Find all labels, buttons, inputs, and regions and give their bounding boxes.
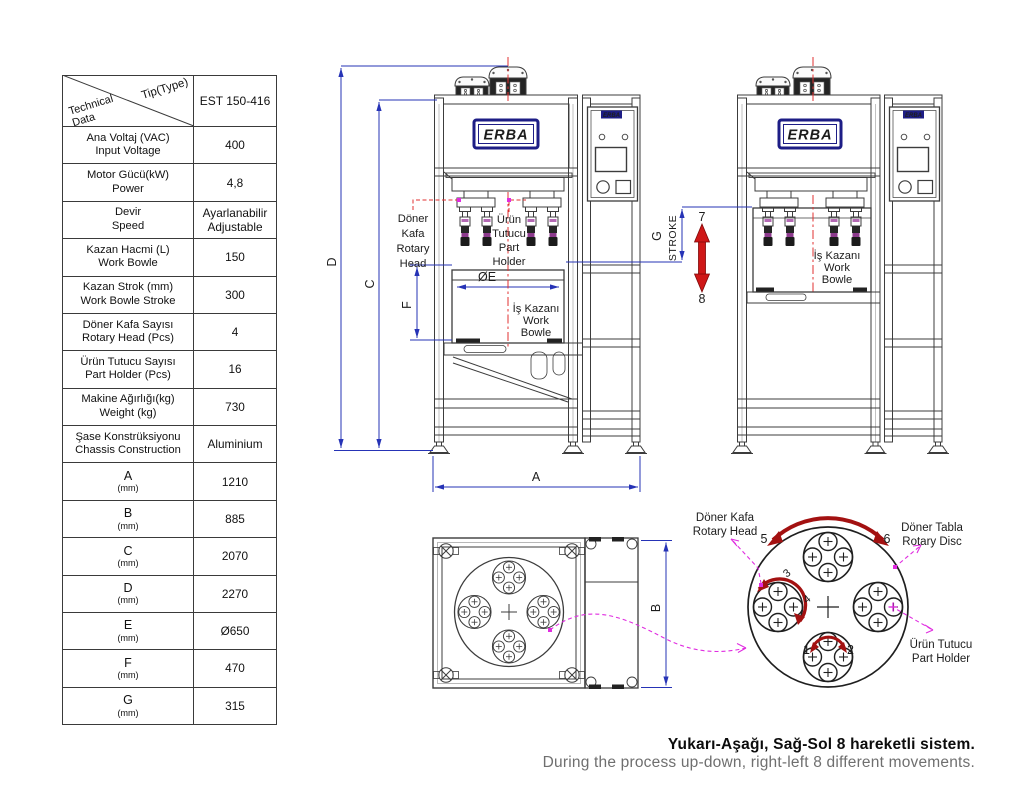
spec-row: Döner Kafa SayısıRotary Head (Pcs)4 [63,313,276,350]
spec-label-line2: (mm) [118,558,139,568]
side-spindles [763,207,862,246]
front-view: ERBA ER [428,67,647,454]
diagram-part-holder-label: Ürün Tutucu [910,639,973,651]
spec-value: 4 [232,325,239,339]
spec-label-line1: E [124,619,132,633]
spec-label-line1: A [124,470,132,484]
spec-label-line1: D [123,582,132,596]
front-rotary-head-label: Döner [398,213,429,225]
top-view-rotary-disc [455,558,564,667]
spec-row-value: 400 [194,127,276,163]
front-part-holder-label: Tutucu [492,228,526,240]
spec-label-line2: Weight (kg) [100,407,157,421]
leader-dot-part-holder [507,198,511,202]
diagram-rotary-head-label: Döner Kafa [696,512,755,524]
top-view-head [493,561,526,594]
diagram-part-holder-label: Part Holder [912,653,970,665]
spec-row-label: Ürün Tutucu SayısıPart Holder (Pcs) [63,351,194,387]
spec-label-line1: G [123,694,133,708]
spec-value: 150 [225,250,245,264]
leader-dot-rotary-head [457,198,461,202]
corner-label-technical-data: Technical Data [68,94,119,126]
leader-dot-head [759,583,763,587]
front-feet [428,442,647,454]
side-control-tower: ERBA [885,95,943,442]
side-labels: İş Kazanı Work Bowle [814,249,861,286]
erba-logo-side: ERBA [779,120,841,148]
erba-logo-text: ERBA [483,128,528,144]
side-work-bowl-label: Bowle [822,274,852,286]
spec-row-label: Döner Kafa SayısıRotary Head (Pcs) [63,314,194,350]
spec-label-line2: Work Bowle Stroke [81,295,176,309]
dim-label-f: F [400,301,414,309]
spec-row: G(mm)315 [63,687,276,724]
spec-row: A(mm)1210 [63,462,276,499]
spec-row: C(mm)2070 [63,537,276,574]
top-view [433,537,638,689]
spec-label-line2: (mm) [118,670,139,680]
caption: Yukarı-Aşağı, Sağ-Sol 8 hareketli sistem… [543,736,975,772]
spec-row: Kazan Hacmi (L)Work Bowle150 [63,238,276,275]
spec-label-line2: Input Voltage [95,145,160,159]
spec-value: Ayarlanabilir [203,206,268,220]
diagram-head [804,533,853,582]
diagram-rotary-disc-label: Rotary Disc [902,536,962,548]
spec-value: 400 [225,138,245,152]
spec-value: 2070 [222,549,248,563]
top-view-tower [585,537,638,689]
spec-row-value: 150 [194,239,276,275]
spec-label-line2: Part Holder (Pcs) [85,369,171,383]
spec-label-line2: (mm) [118,521,139,531]
spec-value: 885 [225,512,245,526]
front-rotary-head-label: Kafa [401,228,425,240]
spec-row-value: 4 [194,314,276,350]
spec-row: F(mm)470 [63,649,276,686]
spec-row-value: 730 [194,389,276,425]
spec-row-label: Motor Gücü(kW)Power [63,164,194,200]
spec-row-label: G(mm) [63,688,194,724]
spec-label-line1: Motor Gücü(kW) [87,169,169,183]
spec-row-value: 300 [194,277,276,313]
spec-row-label: C(mm) [63,538,194,574]
spec-row-label: Makine Ağırlığı(kg)Weight (kg) [63,389,194,425]
motion-number-up: 7 [699,210,706,224]
spec-label-line1: Kazan Hacmi (L) [86,244,169,258]
spec-table: Tip(Type) Technical Data EST 150-416 Ana… [62,75,277,725]
spec-value: 730 [225,400,245,414]
motion-number-6: 6 [884,532,891,546]
spec-row-value: 315 [194,688,276,724]
front-part-holder-label: Ürün [497,214,521,226]
spec-row-value: Ø650 [194,613,276,649]
dim-label-a: A [532,470,541,484]
spec-label-line1: Ana Voltaj (VAC) [86,132,169,146]
spec-row-value: Aluminium [194,426,276,462]
spec-row: D(mm)2270 [63,575,276,612]
front-rotary-head-label: Rotary [397,243,430,255]
spec-label-line2: (mm) [118,633,139,643]
spec-row-label: A(mm) [63,463,194,499]
caption-line2-english: During the process up-down, right-left 8… [543,754,975,772]
spec-header-corner: Tip(Type) Technical Data [63,76,194,126]
spec-row-value: 2270 [194,576,276,612]
spec-row-label: Ana Voltaj (VAC)Input Voltage [63,127,194,163]
spec-label-line1: Makine Ağırlığı(kg) [81,393,174,407]
diagram-rotary-head-label: Rotary Head [693,526,758,538]
front-work-bowl-label: Bowle [521,327,551,339]
top-view-head [493,630,526,663]
diagram-labels: Döner Kafa Rotary Head Döner Tabla Rotar… [693,512,973,665]
dim-label-stroke: STROKE [667,215,679,261]
spec-label-line2: Power [112,183,144,197]
spec-label-line2: Rotary Head (Pcs) [82,332,174,346]
spec-value: 16 [228,362,241,376]
dim-label-g: G [650,231,664,241]
spec-row-value: 885 [194,501,276,537]
dim-label-d: D [325,257,339,266]
spec-value-line2: Adjustable [207,220,262,234]
spec-row-label: Kazan Strok (mm)Work Bowle Stroke [63,277,194,313]
dim-label-c: C [363,279,377,288]
spec-value: 300 [225,288,245,302]
spec-row-label: F(mm) [63,650,194,686]
spec-label-line1: Döner Kafa Sayısı [83,319,174,333]
spec-value: 315 [225,699,245,713]
spec-label-line1: Kazan Strok (mm) [83,281,173,295]
side-work-bowl-label: Work [824,262,850,274]
side-work-bowl-label: İş Kazanı [814,249,861,262]
spec-row-value: 470 [194,650,276,686]
spec-row-label: D(mm) [63,576,194,612]
spec-label-line1: C [123,545,132,559]
spec-value: 2270 [222,587,248,601]
spec-row-label: Şase KonstrüksiyonuChassis Construction [63,426,194,462]
spec-header-model: EST 150-416 [194,76,276,126]
side-rotary-heads [760,191,864,207]
spec-row-value: 2070 [194,538,276,574]
spec-label-line2: (mm) [118,595,139,605]
dim-label-b: B [649,604,663,612]
spec-row: Motor Gücü(kW)Power4,8 [63,163,276,200]
spec-value: Ø650 [221,624,250,638]
front-work-bowl-label: Work [523,315,549,327]
motion-number-down: 8 [699,292,706,306]
spec-label-line2: (mm) [118,483,139,493]
spec-row-label: B(mm) [63,501,194,537]
front-part-holder-label: Holder [493,256,526,268]
spec-row: Kazan Strok (mm)Work Bowle Stroke300 [63,276,276,313]
corner-label-type: Tip(Type) [140,76,190,103]
spec-value: 470 [225,661,245,675]
rotation-diagram [748,527,908,687]
spec-value: Aluminium [207,437,262,451]
spec-label-line1: B [124,507,132,521]
front-work-bowl-label: İş Kazanı [513,302,560,315]
top-view-head [527,596,560,629]
spec-label-line1: Şase Konstrüksiyonu [75,431,180,445]
spec-row-label: DevirSpeed [63,202,194,238]
erba-logo-front: ERBA [474,120,538,148]
leader-dot-disc [893,565,897,569]
erba-mini-logo-side: ERBA [905,113,922,119]
up-down-arrow [695,224,710,292]
front-spindles [460,207,559,246]
side-motor-right [793,67,831,98]
motion-number-5: 5 [761,532,768,546]
spec-label-line2: Work Bowle [98,257,157,271]
spec-row-value: 1210 [194,463,276,499]
diagram-head [804,633,853,682]
link-curve-dot [548,628,552,632]
spec-row: E(mm)Ø650 [63,612,276,649]
part-holder-link-curve [550,614,746,652]
spec-row-value: 16 [194,351,276,387]
spec-label-line1: F [124,657,132,671]
spec-row: DevirSpeedAyarlanabilirAdjustable [63,201,276,238]
erba-mini-logo-front: ERBA [603,113,620,119]
front-control-tower: ERBA [583,95,641,442]
spec-row: Şase KonstrüksiyonuChassis ConstructionA… [63,425,276,462]
spec-label-line2: Chassis Construction [75,444,181,458]
spec-table-header: Tip(Type) Technical Data EST 150-416 [63,76,276,126]
spec-row: Makine Ağırlığı(kg)Weight (kg)730 [63,388,276,425]
spec-label-line2: Speed [112,220,144,234]
diagram-rotary-disc-label: Döner Tabla [901,522,963,534]
caption-line1-turkish: Yukarı-Aşağı, Sağ-Sol 8 hareketli sistem… [543,736,975,754]
spec-row: Ürün Tutucu SayısıPart Holder (Pcs)16 [63,350,276,387]
technical-drawing-sheet: ERBA ER [0,0,1024,812]
motion-number-1: 1 [803,643,810,657]
spec-row-label: E(mm) [63,613,194,649]
front-rotary-head-label: Head [400,258,427,270]
top-view-head [458,596,491,629]
b-dimension [641,541,672,688]
motion-number-2: 2 [847,643,854,657]
spec-row: B(mm)885 [63,500,276,537]
dim-label-oe: ØE [478,270,496,284]
front-part-holder-label: Part [499,242,520,254]
spec-row: Ana Voltaj (VAC)Input Voltage400 [63,126,276,163]
spec-value: 4,8 [227,176,243,190]
erba-logo-text: ERBA [787,128,832,144]
spec-row-value: 4,8 [194,164,276,200]
spec-row-label: Kazan Hacmi (L)Work Bowle [63,239,194,275]
spec-value: 1210 [222,475,248,489]
spec-label-line2: (mm) [118,708,139,718]
spec-label-line1: Devir [115,206,141,220]
spec-label-line1: Ürün Tutucu Sayısı [80,356,175,370]
spec-row-value: AyarlanabilirAdjustable [194,202,276,238]
side-feet [731,442,949,454]
